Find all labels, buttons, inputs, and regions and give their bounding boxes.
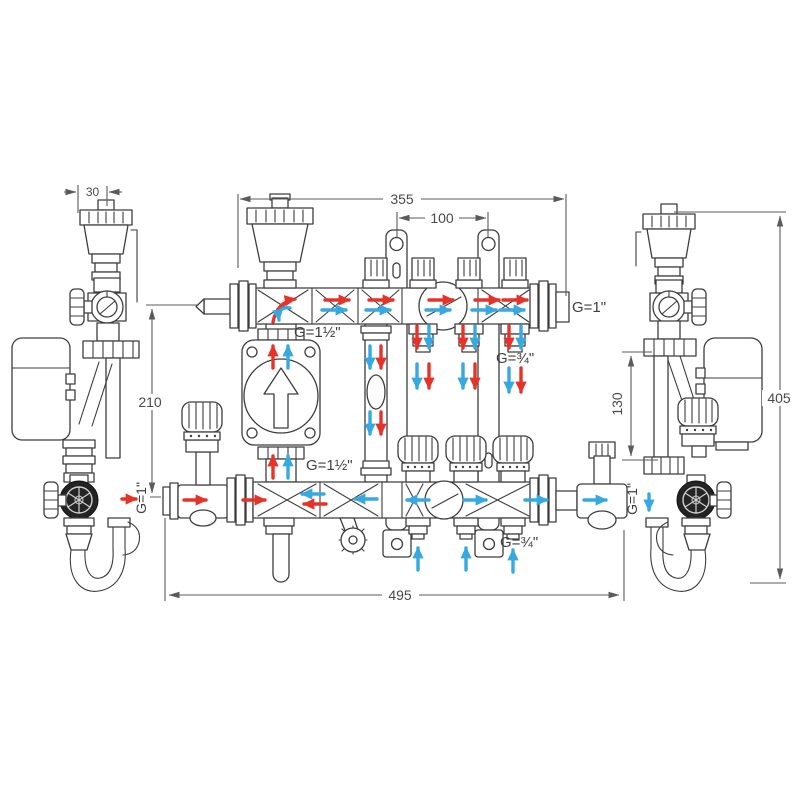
manifold-end-union bbox=[530, 281, 556, 331]
actuator-box bbox=[12, 338, 75, 440]
pipe-union-nut bbox=[83, 341, 139, 358]
handwheel bbox=[70, 289, 84, 325]
manifold-union bbox=[230, 281, 256, 331]
handwheel bbox=[44, 482, 58, 518]
dim-355-label: 355 bbox=[390, 191, 414, 207]
manifold-drawing: 30 355 100 210 130 405 495 G=1½" G=1½" G… bbox=[0, 0, 800, 800]
port-label-right-connection: G=1" bbox=[624, 483, 640, 515]
front-view bbox=[163, 194, 627, 582]
port-label-pump-top: G=1½" bbox=[294, 324, 341, 341]
branch-valve bbox=[577, 442, 627, 529]
loop-outlet-union bbox=[409, 324, 437, 352]
loop-outlet-union bbox=[501, 324, 529, 352]
flow-sight-glass bbox=[419, 282, 467, 330]
air-vent-valve bbox=[643, 204, 695, 292]
manifold-top-valve-cap bbox=[363, 258, 389, 288]
thermostatic-head bbox=[678, 398, 718, 457]
air-vent-valve bbox=[80, 200, 132, 288]
sight-window bbox=[367, 375, 385, 409]
bypass-pipe bbox=[361, 324, 391, 482]
dim-30-label: 30 bbox=[86, 185, 100, 199]
wall-bracket bbox=[636, 232, 641, 266]
port-label-manifold-end: G=1" bbox=[572, 299, 606, 316]
port-label-loop-top: G=¾" bbox=[496, 350, 534, 367]
port-label-loop-bottom: G=¾" bbox=[500, 534, 538, 551]
dim-405-label: 405 bbox=[767, 390, 791, 406]
drain-valve bbox=[339, 518, 367, 554]
manifold-top-valve-cap bbox=[456, 258, 482, 288]
pipe-union-nut bbox=[644, 339, 696, 356]
air-vent-valve bbox=[247, 194, 313, 288]
drain-pipe bbox=[264, 518, 294, 582]
dim-495-label: 495 bbox=[388, 587, 412, 603]
dim-130-label: 130 bbox=[609, 392, 625, 416]
right-side-view bbox=[636, 204, 762, 591]
flow-sight-glass bbox=[425, 481, 463, 519]
shutoff-valve-thermometer bbox=[88, 291, 126, 323]
handwheel bbox=[692, 289, 706, 325]
handwheel bbox=[717, 482, 731, 518]
port-label-pump-bottom: G=1½" bbox=[306, 457, 353, 474]
manifold-top-valve-cap bbox=[410, 258, 436, 288]
dim-210-label: 210 bbox=[138, 394, 162, 410]
thermostatic-valve-head bbox=[182, 402, 222, 485]
technical-drawing-page: 30 355 100 210 130 405 495 G=1½" G=1½" G… bbox=[0, 0, 800, 800]
shutoff-valve-thermometer bbox=[650, 291, 688, 323]
dim-100-label: 100 bbox=[430, 210, 454, 226]
left-side-view bbox=[12, 200, 140, 591]
sensor-probe bbox=[196, 299, 204, 314]
manifold-top-valve-cap bbox=[502, 258, 528, 288]
wall-bracket bbox=[131, 230, 137, 302]
